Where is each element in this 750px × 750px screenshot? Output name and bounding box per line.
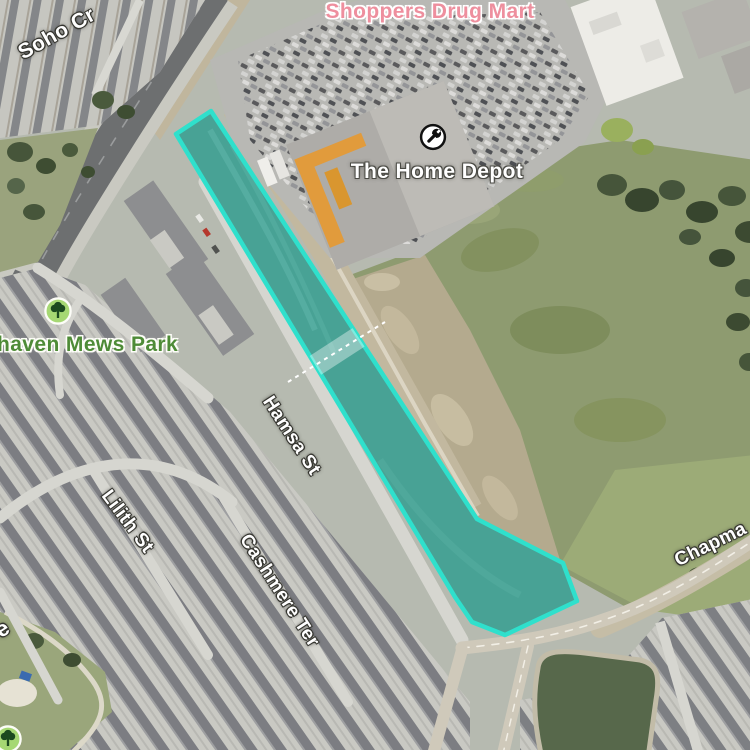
park-tree-icon[interactable] bbox=[0, 725, 22, 750]
park-tree-icon[interactable] bbox=[44, 297, 72, 325]
satellite-imagery bbox=[0, 0, 750, 750]
map-viewport[interactable]: Soho Cr Shoppers Drug Mart The Home Depo… bbox=[0, 0, 750, 750]
small-pond bbox=[535, 652, 658, 750]
wrench-icon[interactable] bbox=[420, 124, 447, 151]
